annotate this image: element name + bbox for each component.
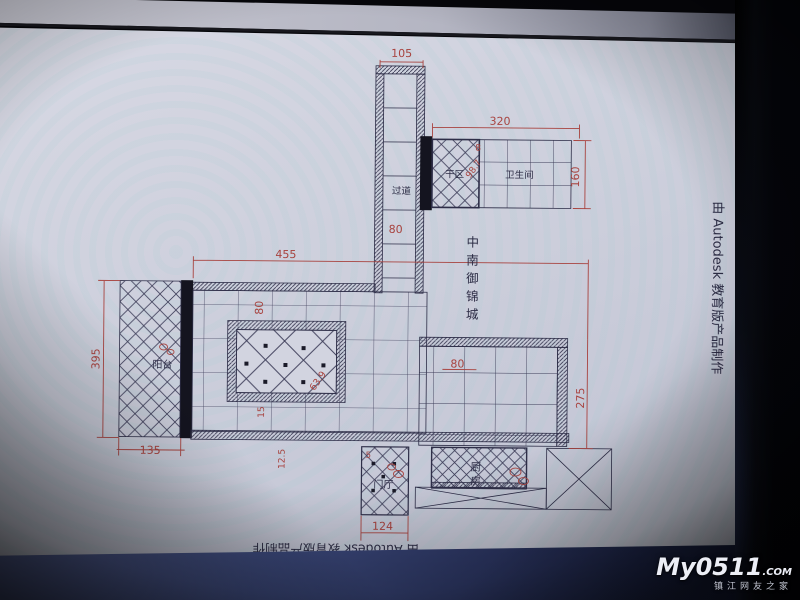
watermark-tagline: 镇江网友之家	[656, 579, 792, 592]
dim-entry-gap: 5	[366, 451, 372, 461]
screen-right-dark-edge	[735, 0, 800, 600]
corridor-room	[374, 66, 425, 293]
svg-text:锦: 锦	[466, 289, 479, 304]
autodesk-credit-right: 由 Autodesk 教育版产品制作	[708, 201, 726, 374]
wall-solid-left	[180, 280, 193, 438]
dim-top-width: 105	[391, 47, 412, 60]
balcony-room	[119, 281, 181, 438]
dim-annex-height: 160	[569, 166, 582, 187]
label-corridor: 过道	[392, 185, 412, 197]
wall-solid-annex	[420, 136, 433, 210]
floor-plan-drawing: 105 80 320 8 98.7 160 455 80 63.9 15 12.…	[0, 0, 800, 600]
label-bathroom: 卫生间	[505, 169, 534, 181]
dim-balcony-height: 395	[89, 348, 102, 369]
dim-band-width: 455	[275, 248, 296, 261]
svg-text:城: 城	[466, 307, 479, 322]
dim-room-tile: 80	[450, 357, 464, 370]
svg-text:南: 南	[466, 253, 479, 268]
svg-text:中: 中	[466, 235, 479, 250]
watermark-com: .COM	[762, 567, 792, 578]
watermark: My0511.COM 镇江网友之家	[656, 557, 792, 592]
label-kitchen-2: 房	[470, 475, 481, 488]
dim-entry-width: 124	[372, 520, 393, 533]
dim-room-height: 275	[574, 388, 587, 409]
dim-band-gap: 80	[253, 301, 266, 315]
label-entry: 门厅	[373, 478, 393, 491]
label-balcony: 阳台	[152, 358, 172, 371]
right-room	[419, 337, 568, 446]
dim-annex-width: 320	[490, 115, 511, 128]
cad-paper: 105 80 320 8 98.7 160 455 80 63.9 15 12.…	[0, 0, 800, 600]
dim-gap-125: 12.5	[278, 449, 288, 469]
dim-gap-15: 15	[257, 406, 267, 418]
dim-corridor-w: 80	[389, 223, 403, 236]
dim-annex-gap: 8	[475, 144, 481, 154]
project-title: 中 南 御 锦 城	[466, 235, 480, 322]
svg-text:御: 御	[466, 271, 479, 286]
label-dry-area: 干区	[445, 169, 465, 180]
watermark-logo: My0511	[656, 553, 762, 581]
dim-balcony-width: 135	[140, 444, 161, 457]
monitor-photo: 105 80 320 8 98.7 160 455 80 63.9 15 12.…	[0, 0, 800, 600]
ceiling-feature	[227, 320, 346, 402]
label-kitchen-1: 厨	[470, 462, 481, 474]
